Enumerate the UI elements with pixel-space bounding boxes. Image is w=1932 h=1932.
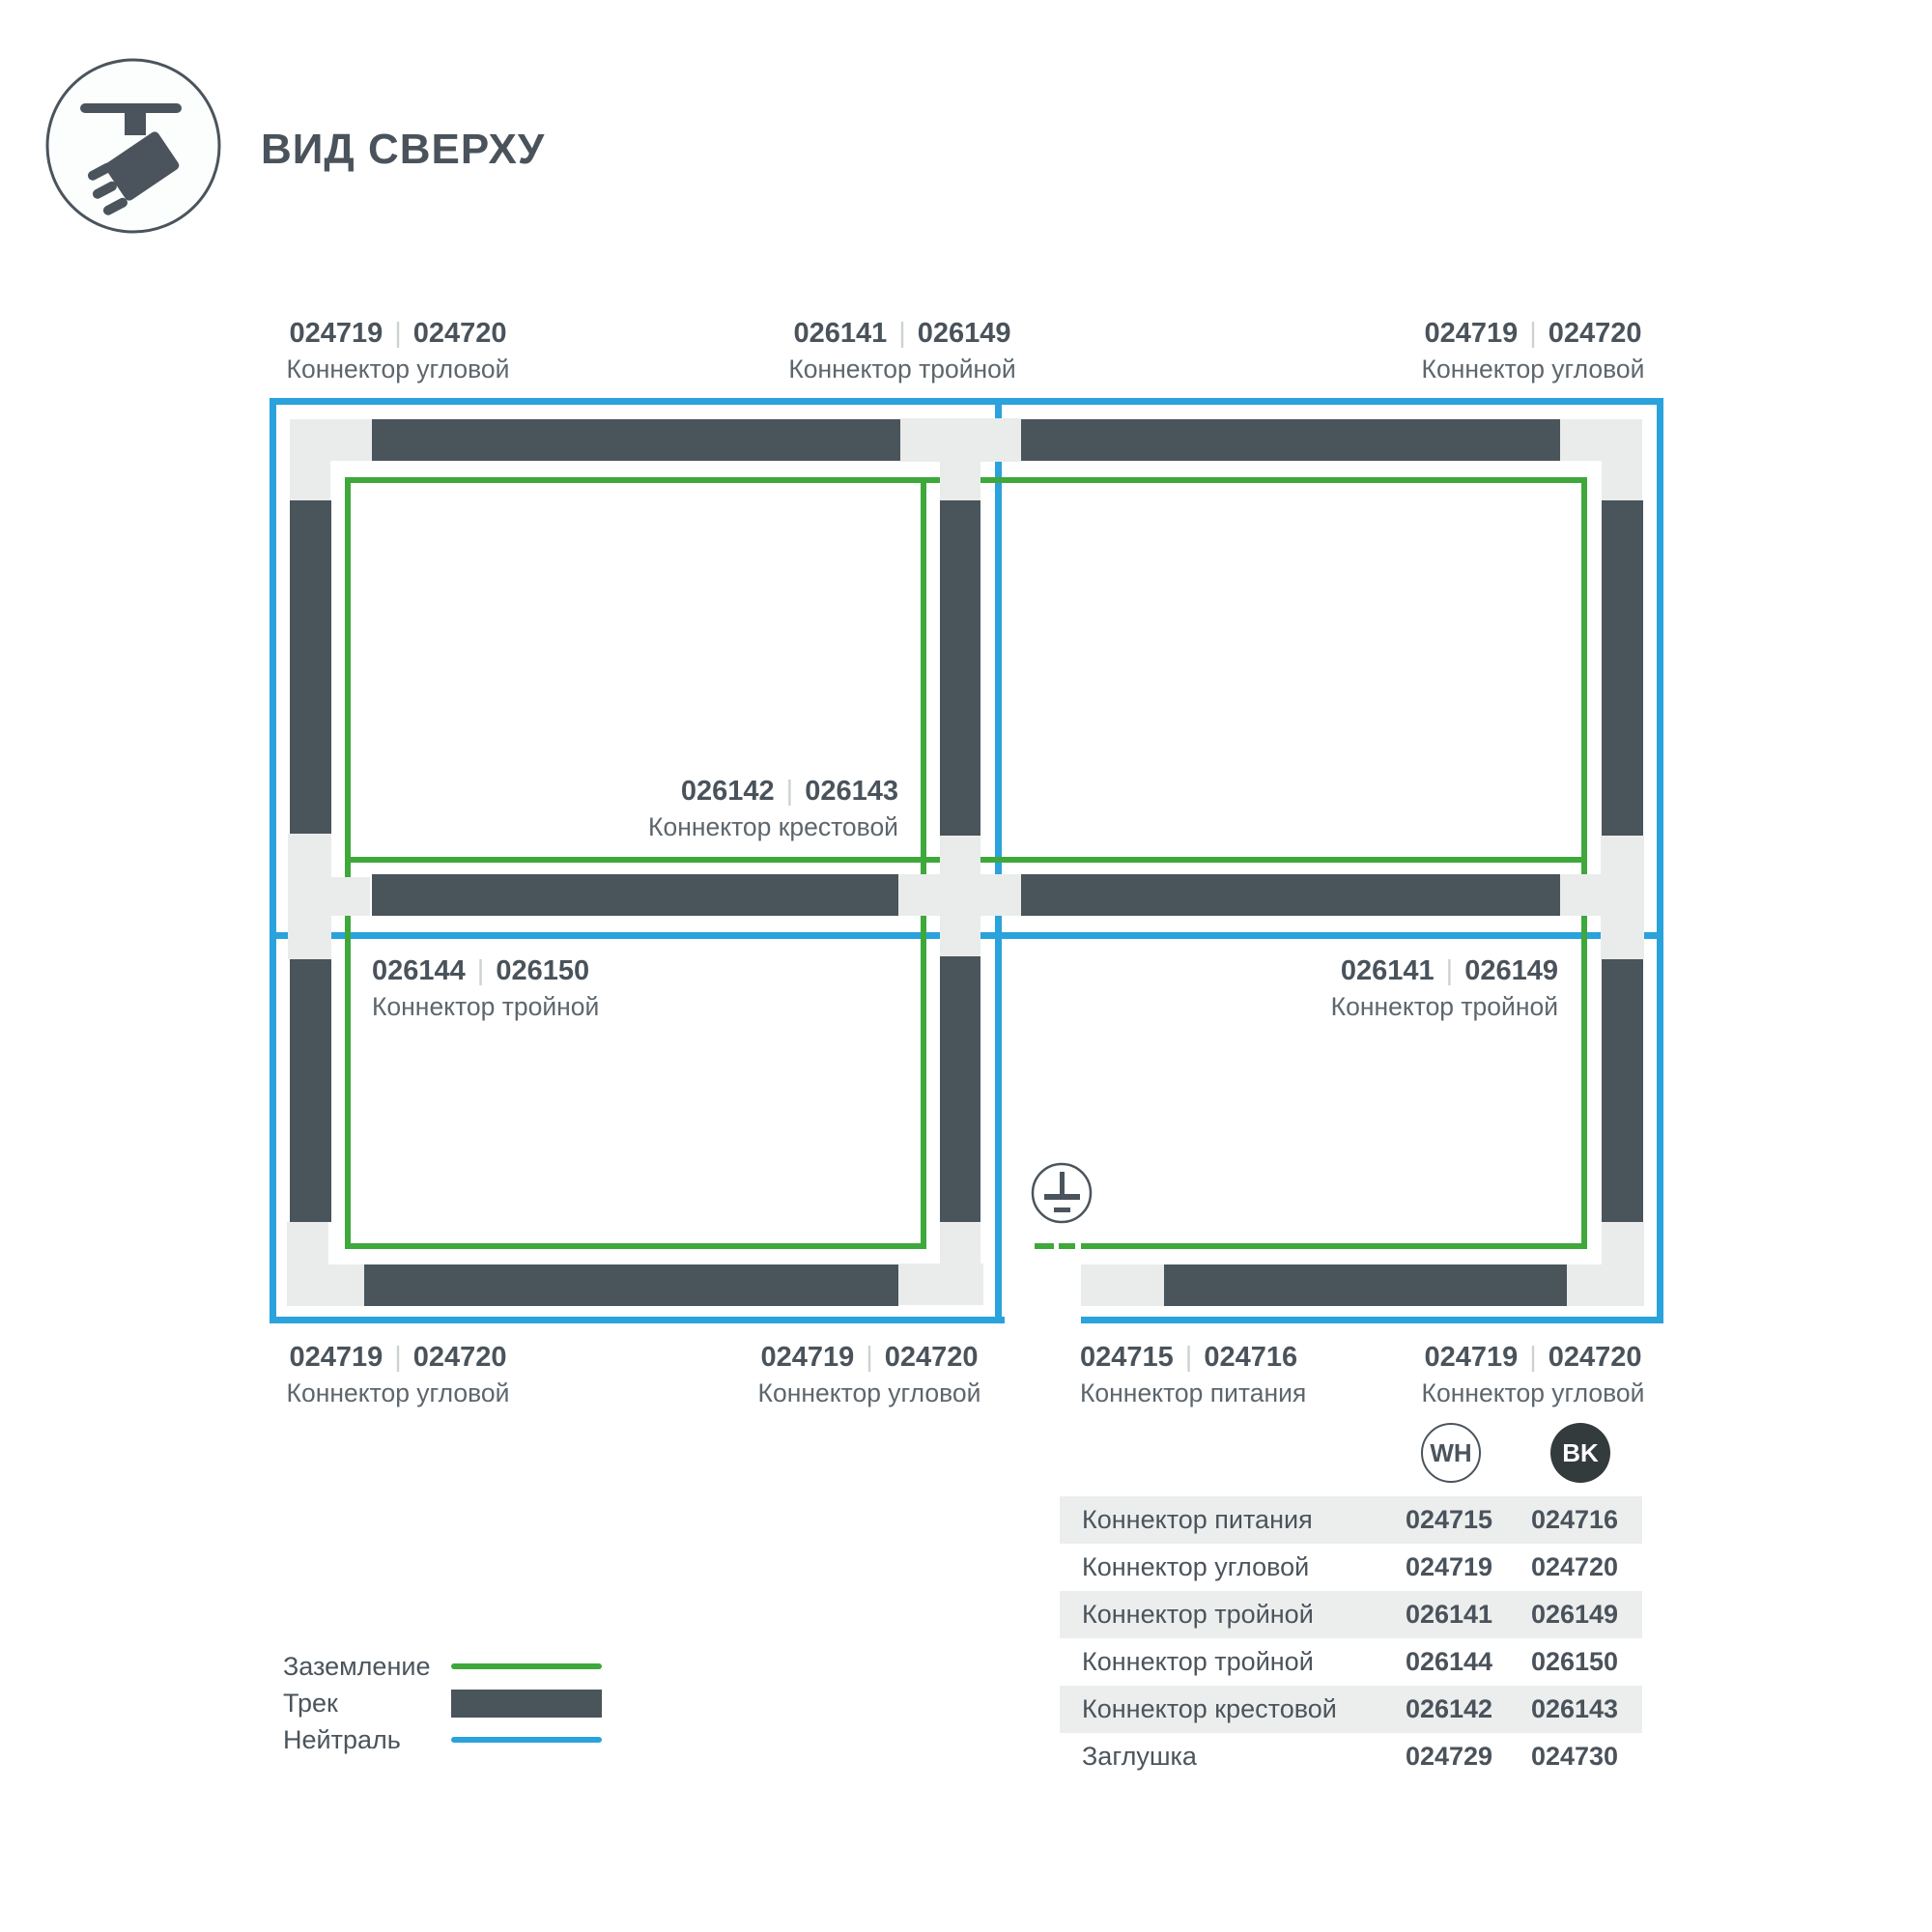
label-t-connector-top: 026141|026149 Коннектор тройной	[788, 319, 1015, 383]
divider: |	[1174, 1342, 1205, 1373]
label-t-connector-right: 026141|026149 Коннектор тройной	[1331, 956, 1558, 1020]
divider: |	[1518, 318, 1548, 349]
table-header: WH BK	[1060, 1423, 1642, 1496]
power-connector	[1081, 1264, 1164, 1306]
color-badge-bk: BK	[1550, 1423, 1610, 1483]
t-connector-top	[900, 418, 1021, 500]
divider: |	[1435, 955, 1465, 986]
label-t-connector-left: 026144|026150 Коннектор тройной	[372, 956, 599, 1020]
table-row: Коннектор крестовой 026142 026143	[1060, 1686, 1642, 1733]
divider: |	[775, 776, 806, 807]
green-line-swatch	[451, 1663, 602, 1669]
divider: |	[854, 1342, 885, 1373]
article-table: WH BK Коннектор питания 024715 024716 Ко…	[1060, 1423, 1642, 1780]
divider: |	[383, 318, 413, 349]
corner-connector-top-right	[1560, 419, 1642, 500]
table-row: Коннектор тройной 026141 026149	[1060, 1591, 1642, 1638]
label-corner-connector-bottom-mid: 024719|024720 Коннектор угловой	[758, 1343, 981, 1406]
table-row: Заглушка 024729 024730	[1060, 1733, 1642, 1780]
corner-connector-bottom-left	[287, 1222, 364, 1306]
t-connector-left	[288, 834, 370, 959]
divider: |	[466, 955, 497, 986]
label-cross-connector: 026142|026143 Коннектор крестовой	[648, 777, 898, 840]
legend-item-track: Трек	[283, 1685, 611, 1721]
label-power-connector: 024715|024716 Коннектор питания	[1080, 1343, 1306, 1406]
blue-line-swatch	[451, 1737, 602, 1743]
table-row: Коннектор тройной 026144 026150	[1060, 1638, 1642, 1686]
legend-item-ground: Заземление	[283, 1648, 611, 1685]
label-corner-connector-bottom-right: 024719|024720 Коннектор угловой	[1422, 1343, 1645, 1406]
label-corner-connector-top-right: 024719|024720 Коннектор угловой	[1422, 319, 1645, 383]
corner-connector-top-left	[290, 419, 372, 500]
earth-ground-icon	[1033, 1164, 1091, 1222]
divider: |	[383, 1342, 413, 1373]
table-row: Коннектор питания 024715 024716	[1060, 1496, 1642, 1544]
track-layout-diagram	[0, 0, 1932, 1932]
color-badge-wh: WH	[1421, 1423, 1481, 1483]
page: ВИД СВЕРХУ	[0, 0, 1932, 1932]
label-corner-connector-top-left: 024719|024720 Коннектор угловой	[287, 319, 510, 383]
divider: |	[887, 318, 918, 349]
table-row: Коннектор угловой 024719 024720	[1060, 1544, 1642, 1591]
legend: Заземление Трек Нейтраль	[283, 1648, 611, 1758]
corner-connector-bottom-right	[1567, 1222, 1644, 1306]
t-connector-right	[1560, 836, 1644, 959]
divider: |	[1518, 1342, 1548, 1373]
label-corner-connector-bottom-left: 024719|024720 Коннектор угловой	[287, 1343, 510, 1406]
legend-item-neutral: Нейтраль	[283, 1721, 611, 1758]
corner-connector-bottom-mid	[898, 1222, 983, 1305]
track-bar-swatch	[451, 1690, 602, 1718]
